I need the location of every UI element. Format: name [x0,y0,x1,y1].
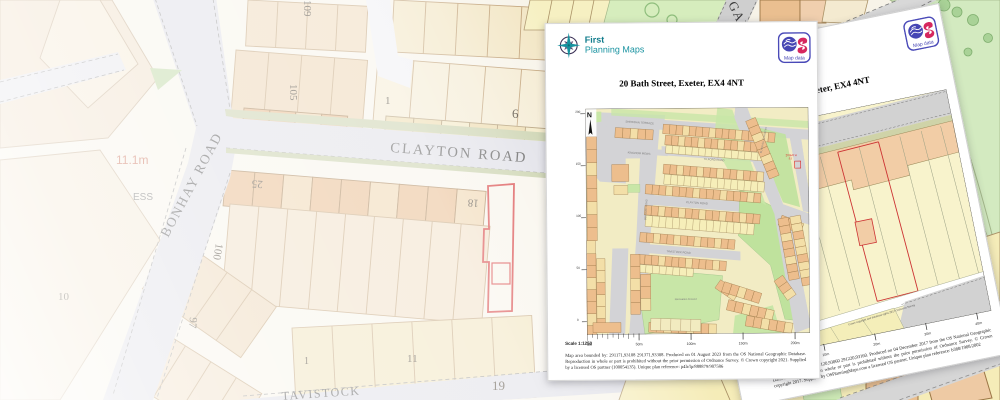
svg-text:0: 0 [577,318,579,322]
svg-text:20m: 20m [873,342,881,347]
svg-text:10m: 10m [822,352,830,357]
svg-text:30m: 30m [924,331,932,336]
svg-text:Recreation Ground: Recreation Ground [675,297,698,301]
svg-text:150m: 150m [739,341,748,345]
svg-text:200: 200 [575,110,580,114]
svg-text:200m: 200m [791,341,800,345]
svg-text:50m: 50m [636,342,643,346]
svg-text:40m: 40m [975,321,983,326]
svg-text:100: 100 [576,214,581,218]
svg-text:ST: ST [789,157,793,161]
svg-text:N: N [587,112,592,119]
svg-text:50: 50 [577,266,581,270]
svg-text:Map data: Map data [784,55,805,61]
svg-text:150: 150 [576,162,581,166]
svg-text:100m: 100m [687,342,696,346]
